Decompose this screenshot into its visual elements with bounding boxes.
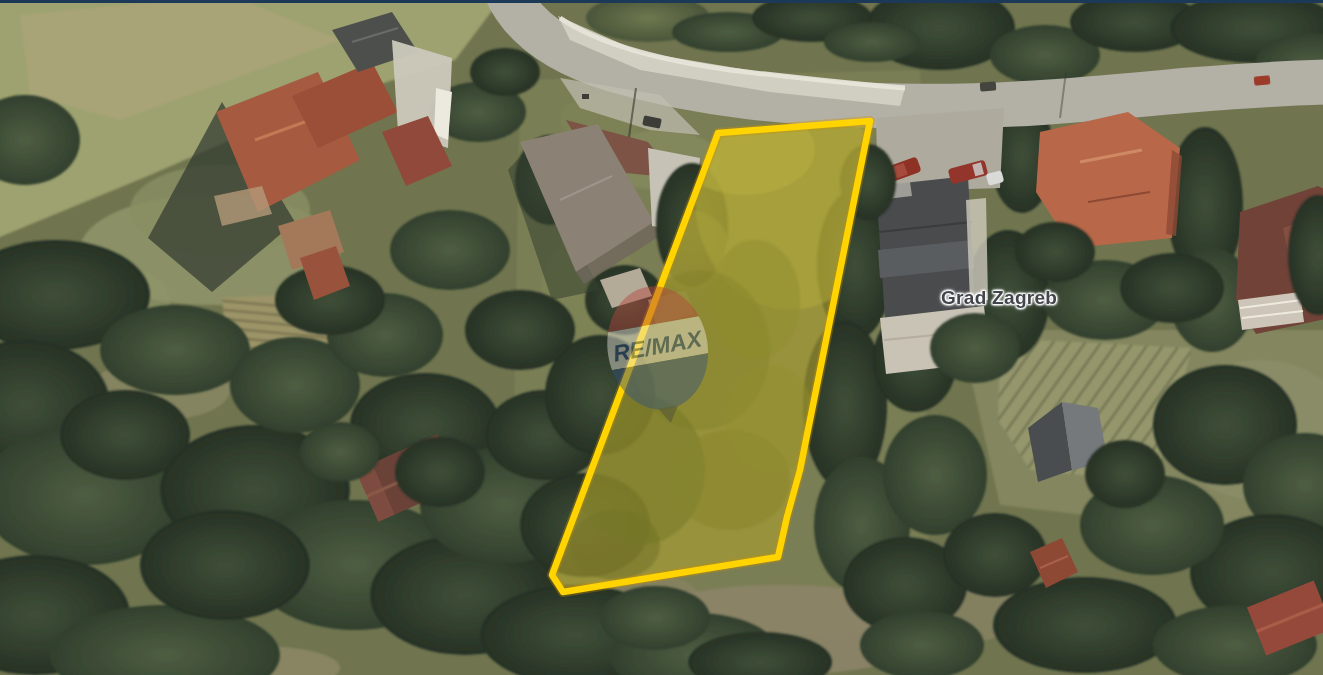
- satellite-map[interactable]: RE/MAX Grad Zagreb: [0, 0, 1323, 675]
- car-on-road-red: [1254, 75, 1271, 86]
- place-label: Grad Zagreb: [941, 287, 1057, 309]
- image-border-top: [0, 0, 1323, 3]
- car-on-road-3: [582, 94, 589, 99]
- car-on-road-2: [980, 81, 997, 91]
